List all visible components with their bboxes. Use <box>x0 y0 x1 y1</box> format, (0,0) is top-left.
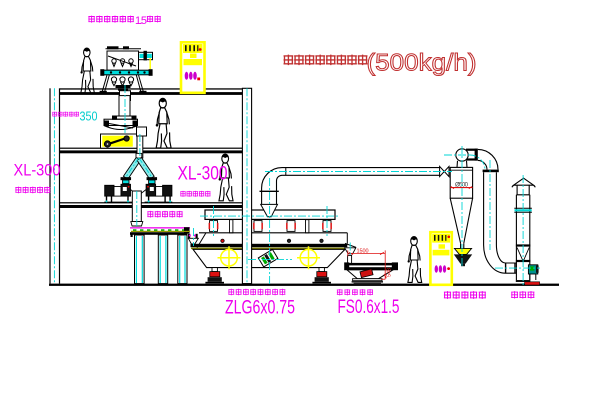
svg-text:ZLG6x0.75: ZLG6x0.75 <box>225 298 295 319</box>
svg-text:FS0.6x1.5: FS0.6x1.5 <box>338 297 400 318</box>
svg-text:350: 350 <box>80 109 98 124</box>
svg-text:548: 548 <box>387 268 393 277</box>
svg-text:1500: 1500 <box>357 249 369 255</box>
svg-text:(500kg/h): (500kg/h) <box>367 50 477 77</box>
svg-text:XL-300: XL-300 <box>178 164 228 185</box>
svg-text:1.5: 1.5 <box>135 15 147 27</box>
svg-text:XL-300: XL-300 <box>14 161 61 180</box>
